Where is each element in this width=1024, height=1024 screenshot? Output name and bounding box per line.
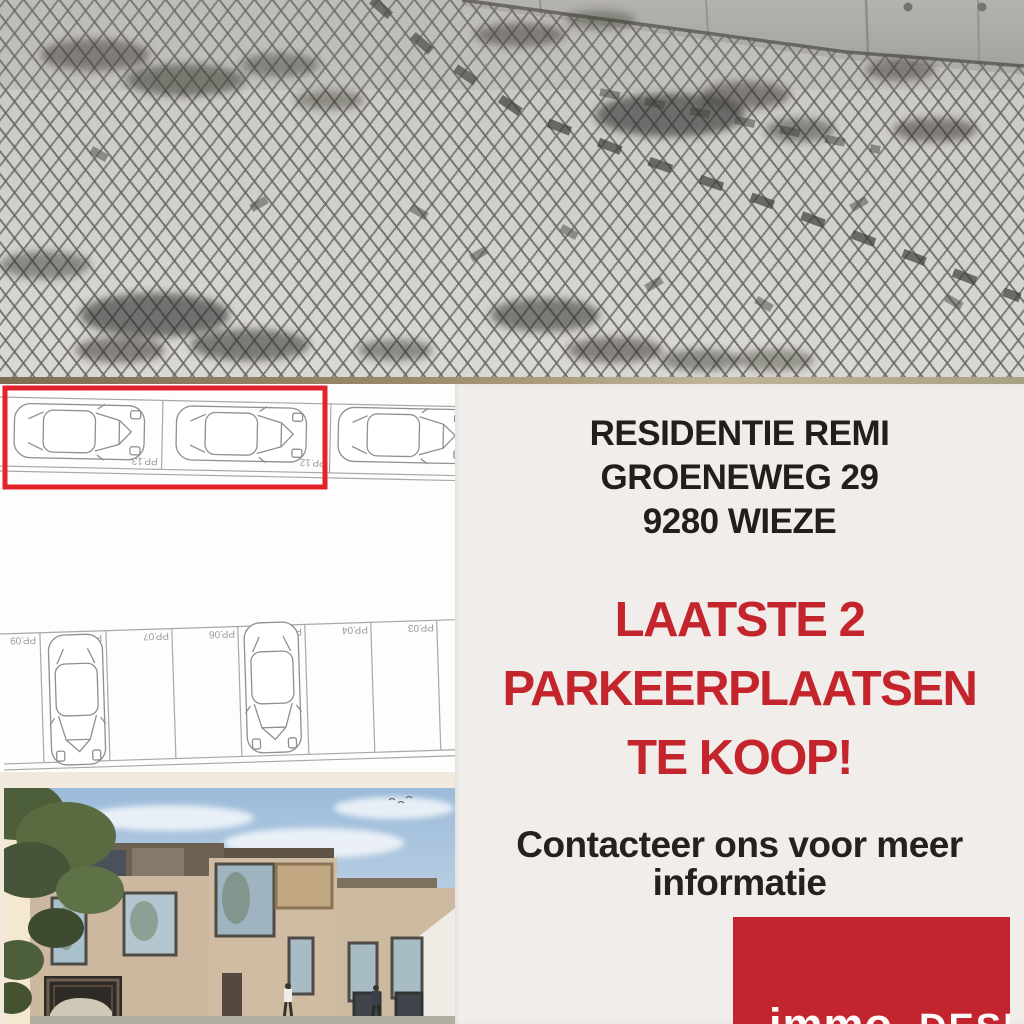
- poster: PP.13 PP.12 PP.09 PP.08 PP.07: [0, 0, 1024, 1024]
- headline-line-2: PARKEERPLAATSEN: [455, 655, 1024, 724]
- perspective-fade: [0, 0, 1024, 90]
- info-panel: RESIDENTIE REMI GROENEWEG 29 9280 WIEZE …: [455, 384, 1024, 1024]
- parking-spot-label: PP.07: [142, 630, 169, 642]
- parking-spot-label: PP.04: [341, 623, 368, 635]
- parking-floorplan: PP.13 PP.12 PP.09 PP.08 PP.07: [0, 384, 455, 772]
- address-block: RESIDENTIE REMI GROENEWEG 29 9280 WIEZE: [455, 412, 1024, 544]
- parking-row-1: PP.13 PP.12: [0, 397, 455, 481]
- street: [30, 1016, 455, 1024]
- address-line-2: GROENEWEG 29: [455, 456, 1024, 500]
- headline-line-3: TE KOOP!: [455, 724, 1024, 793]
- car-topview: [47, 634, 107, 766]
- car-topview: [338, 406, 455, 465]
- cta-line-2: informatie: [455, 864, 1024, 902]
- pavement-photo: [0, 0, 1024, 377]
- headline-line-1: LAATSTE 2: [455, 586, 1024, 655]
- floorplan-drawing: PP.13 PP.12 PP.09 PP.08 PP.07: [0, 384, 455, 772]
- cta-block: Contacteer ons voor meer informatie: [455, 826, 1024, 902]
- parking-spot-label: PP.09: [10, 634, 37, 646]
- dark-bricks: [89, 146, 964, 312]
- immodesk-logo: immoDESK: [733, 917, 1010, 1024]
- building-render: [4, 788, 455, 1024]
- logo-word-desk: DESK: [919, 1007, 1010, 1024]
- parking-spot-label: PP.12: [299, 456, 326, 468]
- logo-text: immoDESK: [769, 999, 1010, 1024]
- building-render-illustration: [4, 788, 455, 1024]
- address-line-1: RESIDENTIE REMI: [455, 412, 1024, 456]
- parking-row-2: PP.09 PP.08 PP.07 PP.06 PP.05 PP.04 PP.0…: [0, 616, 455, 770]
- headline-block: LAATSTE 2 PARKEERPLAATSEN TE KOOP!: [455, 586, 1024, 793]
- address-line-3: 9280 WIEZE: [455, 500, 1024, 544]
- car-topview: [14, 402, 145, 461]
- dirt-strip: [0, 377, 1024, 384]
- pavement-overlay: [0, 0, 1024, 377]
- parking-spot-label: PP.06: [208, 628, 235, 640]
- car-topview: [243, 622, 303, 754]
- logo-word-immo: immo: [769, 999, 893, 1024]
- car-topview: [176, 405, 307, 464]
- cta-line-1: Contacteer ons voor meer: [455, 826, 1024, 864]
- parking-spot-label: PP.03: [407, 621, 434, 633]
